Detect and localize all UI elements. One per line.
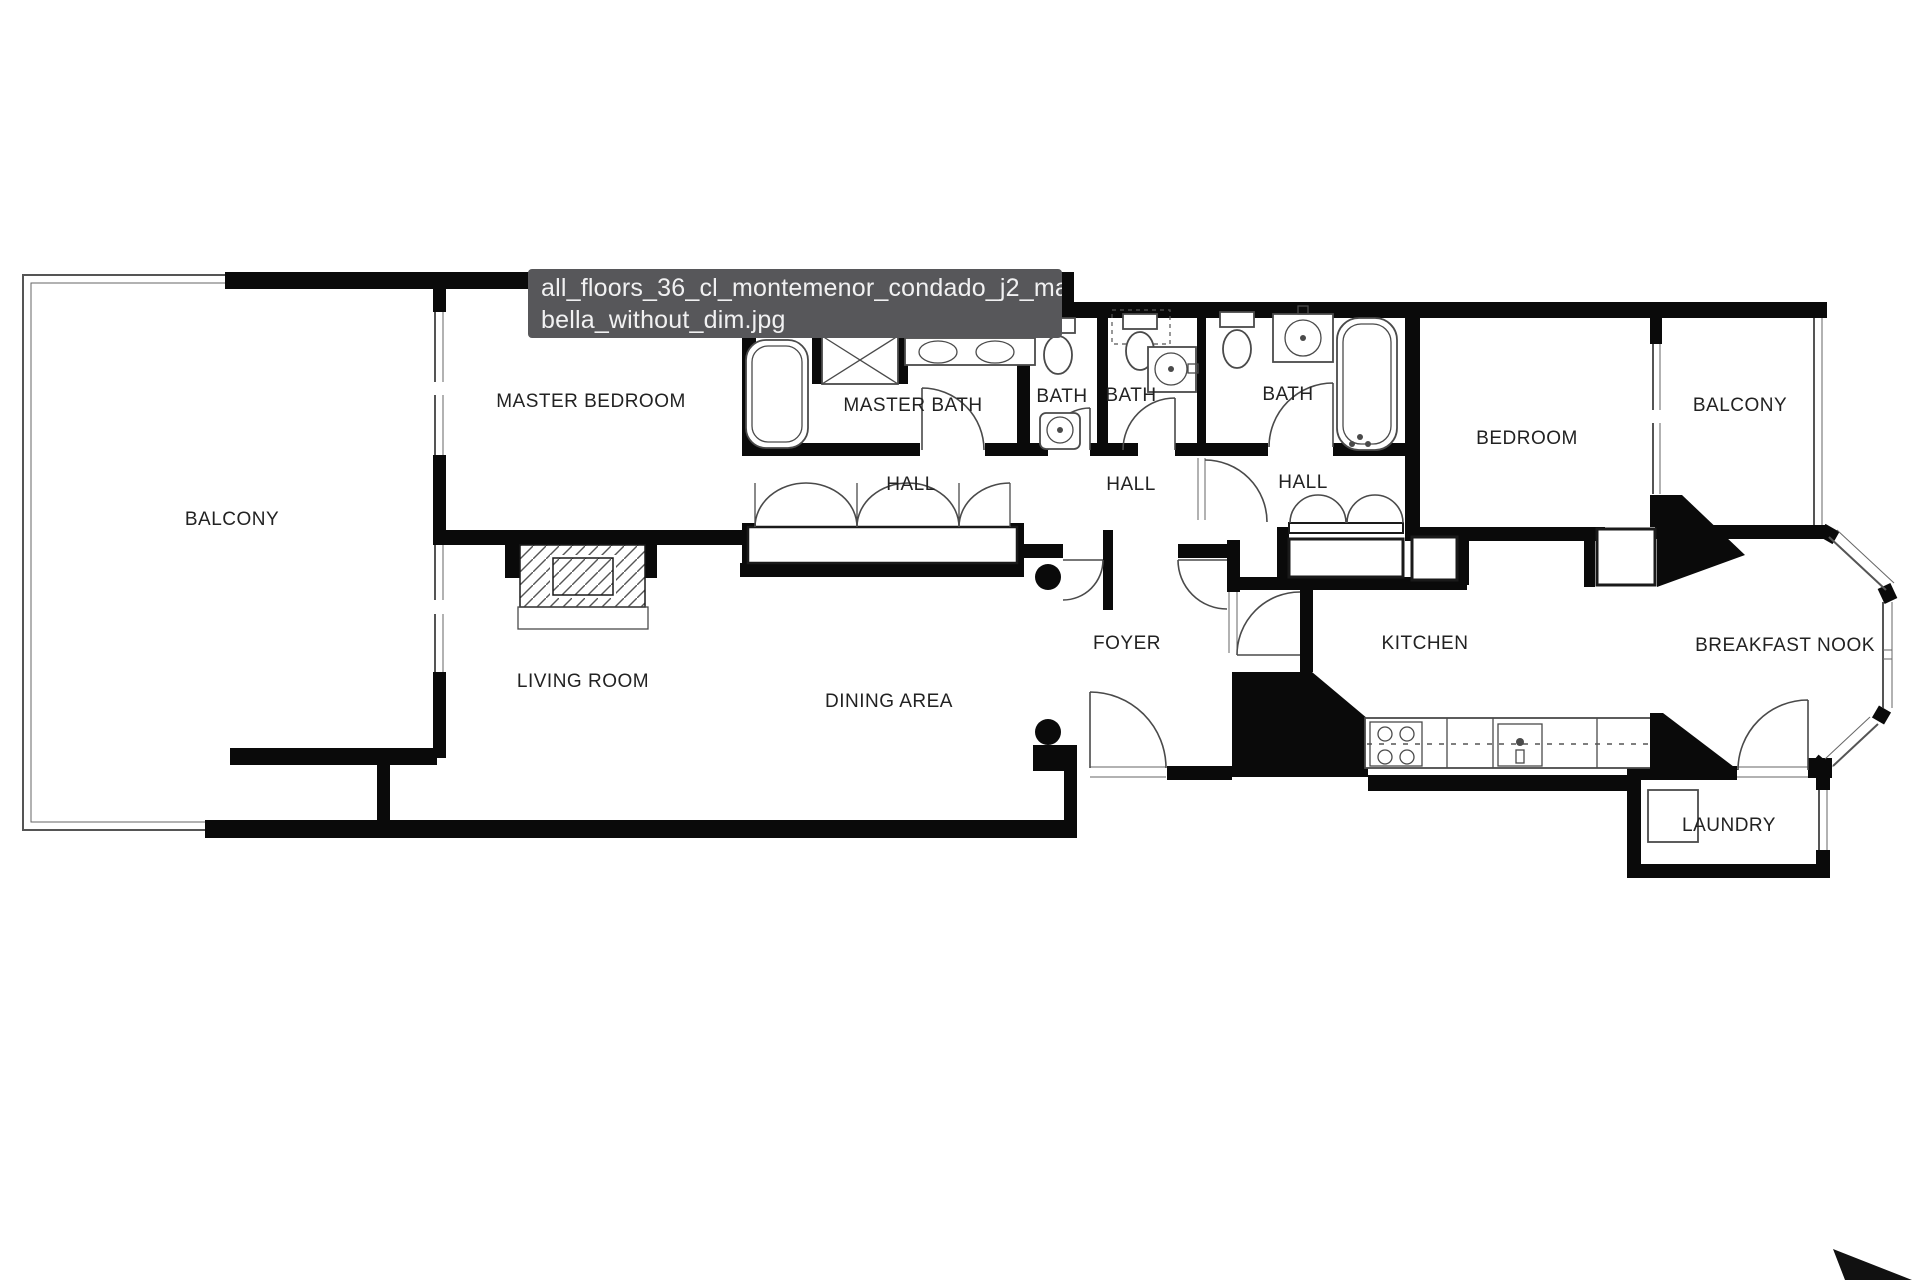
room-label-bath-1: BATH <box>1036 386 1087 407</box>
double-sink-icon <box>905 338 1035 365</box>
room-label-balcony-right: BALCONY <box>1693 395 1787 416</box>
room-label-bath-3: BATH <box>1262 384 1313 405</box>
tooltip-line-2: bella_without_dim.jpg <box>541 304 1049 336</box>
room-label-hall-1: HALL <box>886 474 936 495</box>
fireplace-icon <box>518 545 648 629</box>
entrance-door <box>1090 692 1166 768</box>
shower-icon <box>822 336 898 384</box>
room-label-master-bath: MASTER BATH <box>843 395 982 416</box>
room-label-master-bedroom: MASTER BEDROOM <box>496 391 686 412</box>
column <box>1035 564 1061 590</box>
room-label-balcony-left: BALCONY <box>185 509 279 530</box>
floor-plan: BALCONY MASTER BEDROOM MASTER BATH BATH … <box>0 0 1920 1280</box>
room-label-bath-2: BATH <box>1105 385 1156 406</box>
hall-door <box>1205 460 1267 522</box>
kitchen-door <box>1237 592 1300 655</box>
wall-wedge <box>1650 713 1738 770</box>
tooltip-line-1: all_floors_36_cl_montemenor_condado_j2_m… <box>541 272 1049 304</box>
bathtub-icon <box>1337 318 1397 450</box>
room-label-laundry: LAUNDRY <box>1682 815 1776 836</box>
room-label-hall-2: HALL <box>1106 474 1156 495</box>
room-label-kitchen: KITCHEN <box>1382 633 1469 654</box>
room-label-breakfast-nook: BREAKFAST NOOK <box>1695 635 1875 656</box>
sink-icon <box>1040 413 1080 449</box>
foyer-door-right <box>1178 560 1227 609</box>
foyer-door-left <box>1063 560 1103 600</box>
kitchen-counter <box>1365 718 1657 768</box>
room-label-bedroom: BEDROOM <box>1476 428 1578 449</box>
room-label-hall-3: HALL <box>1278 472 1328 493</box>
toilet-icon <box>1220 312 1254 368</box>
column <box>1035 719 1061 745</box>
room-label-living-room: LIVING ROOM <box>517 671 649 692</box>
room-label-foyer: FOYER <box>1093 633 1161 654</box>
bathtub-icon <box>746 340 808 448</box>
sink-icon <box>1273 306 1333 362</box>
screenshot: BALCONY MASTER BEDROOM MASTER BATH BATH … <box>0 0 1920 1280</box>
room-label-dining-area: DINING AREA <box>825 691 953 712</box>
breakfast-nook-door <box>1738 700 1808 770</box>
filename-tooltip: all_floors_36_cl_montemenor_condado_j2_m… <box>528 269 1062 338</box>
